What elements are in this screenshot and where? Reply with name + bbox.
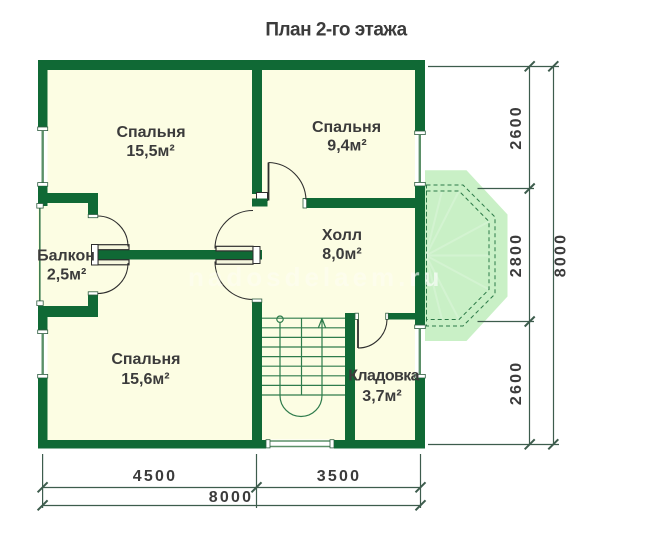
svg-text:3500: 3500	[317, 468, 361, 485]
svg-text:4500: 4500	[133, 468, 177, 485]
svg-text:3,7м²: 3,7м²	[362, 388, 401, 405]
svg-text:План 2-го этажа: План 2-го этажа	[265, 20, 407, 41]
svg-text:nadosdelaem.ru: nadosdelaem.ru	[188, 262, 443, 292]
svg-text:Кладовка: Кладовка	[348, 368, 419, 385]
svg-text:2600: 2600	[508, 361, 525, 405]
svg-text:Спальня: Спальня	[116, 124, 185, 141]
svg-text:9,4м²: 9,4м²	[327, 138, 366, 155]
svg-text:Спальня: Спальня	[111, 351, 180, 368]
svg-text:15,5м²: 15,5м²	[126, 143, 174, 160]
svg-text:Балкон: Балкон	[37, 248, 95, 265]
svg-text:8000: 8000	[553, 233, 570, 277]
svg-text:Спальня: Спальня	[312, 119, 381, 136]
svg-text:15,6м²: 15,6м²	[121, 371, 169, 388]
svg-text:8,0м²: 8,0м²	[322, 246, 361, 263]
svg-text:8000: 8000	[209, 489, 253, 506]
svg-text:2,5м²: 2,5м²	[47, 267, 86, 284]
svg-text:2800: 2800	[508, 233, 525, 277]
svg-text:Холл: Холл	[322, 227, 362, 244]
svg-text:2600: 2600	[508, 105, 525, 149]
